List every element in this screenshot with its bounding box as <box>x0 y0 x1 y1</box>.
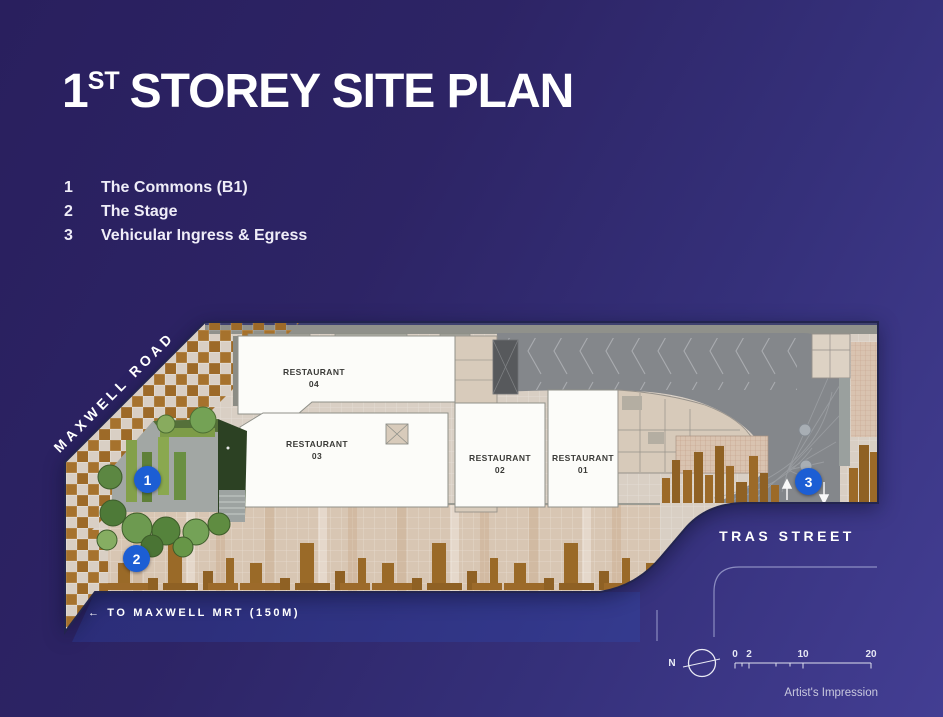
restaurant-04-label: RESTAURANT 04 <box>283 367 345 390</box>
restaurant-04-block <box>238 336 455 414</box>
scale-bar <box>735 663 871 669</box>
restaurant-name: RESTAURANT <box>283 367 345 379</box>
scale-tick-10: 10 <box>797 649 808 660</box>
scale-tick-2: 2 <box>746 649 752 660</box>
legend-label: Vehicular Ingress & Egress <box>101 224 307 248</box>
north-label: N <box>662 658 682 669</box>
legend-num: 2 <box>64 200 101 224</box>
restaurant-01-label: RESTAURANT 01 <box>552 453 614 476</box>
restaurant-name: RESTAURANT <box>469 453 531 465</box>
legend-item-vehicular: 3 Vehicular Ingress & Egress <box>64 224 307 248</box>
restaurant-number: 04 <box>283 379 345 391</box>
restaurant-03-label: RESTAURANT 03 <box>286 439 348 462</box>
curb-lines <box>657 567 877 641</box>
restaurant-number: 03 <box>286 451 348 463</box>
legend-num: 3 <box>64 224 101 248</box>
site-plan-artwork <box>65 322 878 640</box>
restaurant-number: 02 <box>469 465 531 477</box>
legend-label: The Commons (B1) <box>101 176 248 200</box>
title-number: 1 <box>62 65 88 118</box>
restaurant-01-block <box>548 390 618 507</box>
legend-num: 1 <box>64 176 101 200</box>
site-plan-page: 1STSTOREY SITE PLAN 1 The Commons (B1) 2… <box>0 0 943 717</box>
legend: 1 The Commons (B1) 2 The Stage 3 Vehicul… <box>64 176 307 248</box>
mrt-direction-note: ← TO MAXWELL MRT (150M) <box>88 607 300 619</box>
legend-label: The Stage <box>101 200 177 224</box>
restaurant-number: 01 <box>552 465 614 477</box>
page-title: 1STSTOREY SITE PLAN <box>62 64 573 119</box>
title-ordinal: ST <box>88 67 120 95</box>
marker-vehicular: 3 <box>795 468 822 495</box>
legend-item-stage: 2 The Stage <box>64 200 307 224</box>
legend-item-commons: 1 The Commons (B1) <box>64 176 307 200</box>
restaurant-name: RESTAURANT <box>552 453 614 465</box>
scale-tick-20: 20 <box>865 649 876 660</box>
restaurant-name: RESTAURANT <box>286 439 348 451</box>
marker-stage: 2 <box>123 545 150 572</box>
artists-impression-credit: Artist's Impression <box>784 687 878 699</box>
scale-tick-0: 0 <box>732 649 738 660</box>
north-compass <box>683 650 720 677</box>
marker-commons: 1 <box>134 466 161 493</box>
title-text: STOREY SITE PLAN <box>130 65 574 118</box>
tras-street-label: TRAS STREET <box>700 528 874 544</box>
restaurant-02-label: RESTAURANT 02 <box>469 453 531 476</box>
